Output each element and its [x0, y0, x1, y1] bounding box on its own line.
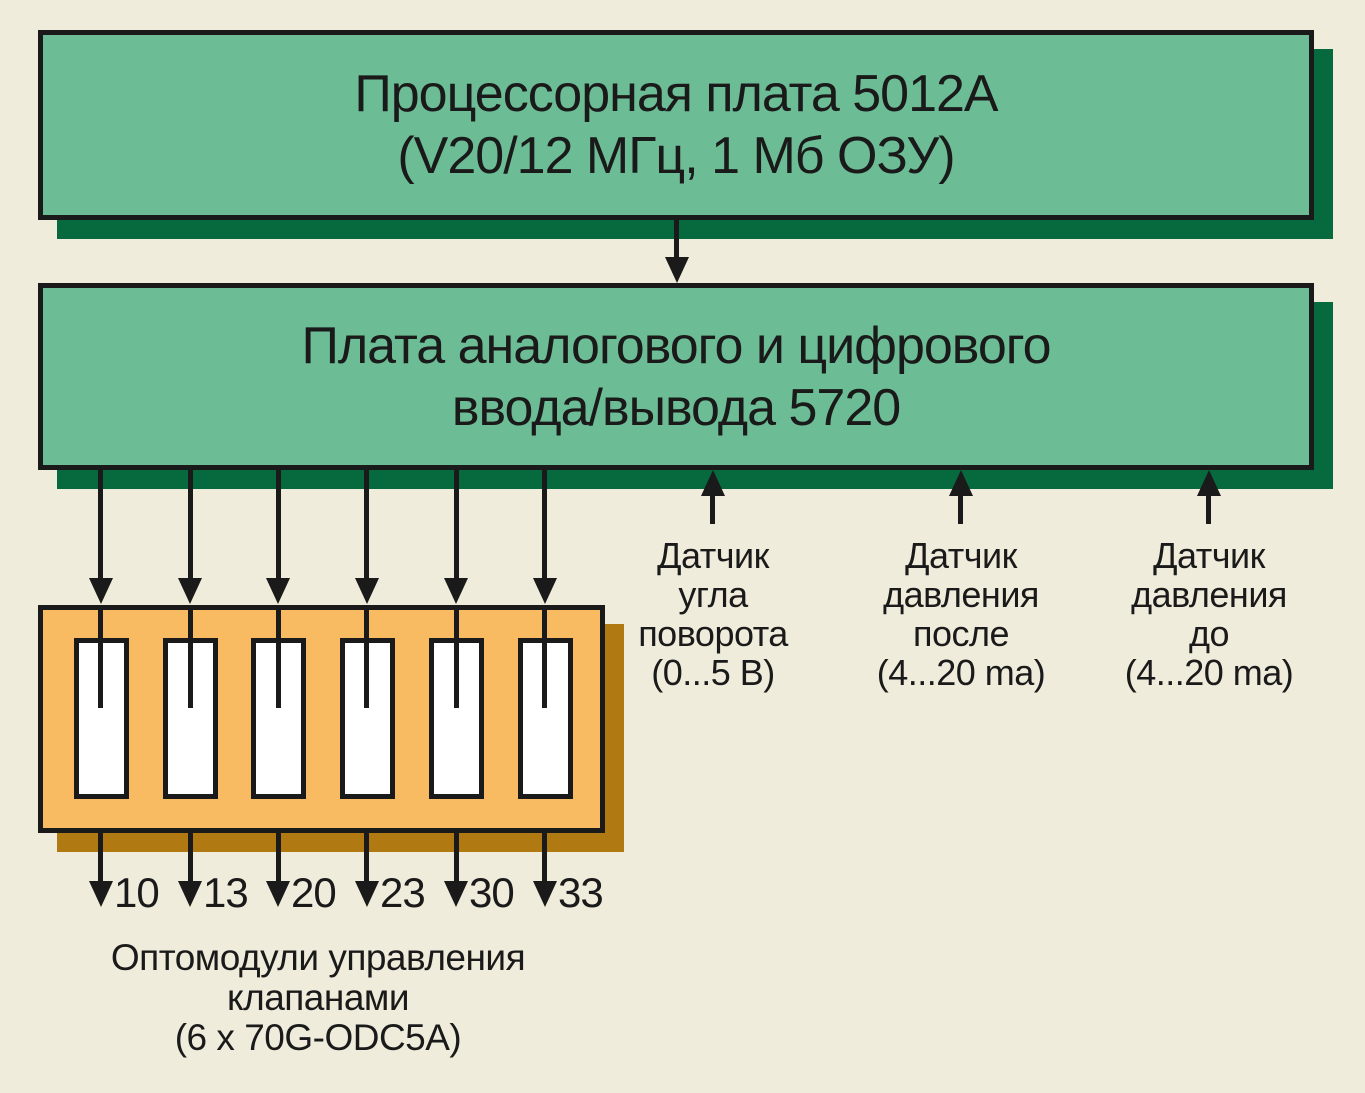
io-to-module-arrow-2-line: [188, 470, 193, 578]
optomodules-caption-line2: клапанами: [48, 978, 588, 1018]
flow-arrow-processor-to-io-line: [674, 220, 679, 258]
valve-output-arrow-3-line: [276, 833, 281, 883]
optomodules-caption-line1: Оптомодули управления: [48, 938, 588, 978]
valve-output-arrow-1-head: [89, 881, 113, 907]
valve-output-label-6: 33: [558, 872, 603, 914]
valve-output-label-4: 23: [380, 872, 425, 914]
valve-output-arrow-1-line: [98, 833, 103, 883]
valve-output-label-5: 30: [469, 872, 514, 914]
valve-output-arrow-5-head: [444, 881, 468, 907]
slot-wire-3: [276, 605, 281, 708]
io-board: Плата аналогового и цифрового ввода/выво…: [38, 283, 1314, 470]
io-to-module-arrow-4-head: [355, 578, 379, 604]
valve-output-label-2: 13: [203, 872, 248, 914]
io-to-module-arrow-1-line: [98, 470, 103, 578]
io-board-title-line2: ввода/вывода 5720: [452, 377, 900, 439]
sensor-label-pressure-before: Датчик давления до (4...20 ma): [1059, 536, 1359, 692]
valve-output-arrow-4-head: [355, 881, 379, 907]
sensor-label-pressure-before-line3: до: [1059, 614, 1359, 653]
valve-output-arrow-2-head: [178, 881, 202, 907]
slot-wire-2: [188, 605, 193, 708]
processor-board-title-line1: Процессорная плата 5012А: [354, 63, 997, 125]
sensor-arrow-pressure-after-line: [958, 494, 963, 524]
flow-arrow-processor-to-io-head: [665, 257, 689, 283]
valve-output-arrow-6-head: [533, 881, 557, 907]
io-to-module-arrow-4-line: [364, 470, 369, 578]
optomodules-caption-line3: (6 x 70G-ODC5A): [48, 1018, 588, 1058]
io-to-module-arrow-6-line: [542, 470, 547, 578]
processor-board-title-line2: (V20/12 МГц, 1 Мб ОЗУ): [397, 125, 954, 187]
io-to-module-arrow-3-head: [266, 578, 290, 604]
processor-board: Процессорная плата 5012А (V20/12 МГц, 1 …: [38, 30, 1314, 220]
sensor-arrow-pressure-before-line: [1206, 494, 1211, 524]
io-to-module-arrow-3-line: [276, 470, 281, 578]
io-board-title-line1: Плата аналогового и цифрового: [301, 315, 1050, 377]
sensor-label-pressure-before-line2: давления: [1059, 575, 1359, 614]
valve-output-label-1: 10: [114, 872, 159, 914]
io-to-module-arrow-5-line: [454, 470, 459, 578]
io-to-module-arrow-2-head: [178, 578, 202, 604]
io-to-module-arrow-1-head: [89, 578, 113, 604]
sensor-label-pressure-before-line1: Датчик: [1059, 536, 1359, 575]
valve-output-arrow-5-line: [454, 833, 459, 883]
valve-output-arrow-2-line: [188, 833, 193, 883]
io-to-module-arrow-6-head: [533, 578, 557, 604]
sensor-arrow-pressure-after-head: [949, 470, 973, 496]
io-to-module-arrow-5-head: [444, 578, 468, 604]
optomodules-caption: Оптомодули управления клапанами (6 x 70G…: [48, 938, 588, 1058]
valve-output-arrow-4-line: [364, 833, 369, 883]
sensor-arrow-angle-head: [701, 470, 725, 496]
valve-output-label-3: 20: [291, 872, 336, 914]
sensor-arrow-angle-line: [710, 494, 715, 524]
sensor-arrow-pressure-before-head: [1197, 470, 1221, 496]
slot-wire-1: [98, 605, 103, 708]
diagram-canvas: Процессорная плата 5012А (V20/12 МГц, 1 …: [0, 0, 1365, 1093]
slot-wire-4: [364, 605, 369, 708]
valve-output-arrow-6-line: [542, 833, 547, 883]
valve-output-arrow-3-head: [266, 881, 290, 907]
slot-wire-6: [542, 605, 547, 708]
sensor-label-pressure-before-line4: (4...20 ma): [1059, 653, 1359, 692]
slot-wire-5: [454, 605, 459, 708]
